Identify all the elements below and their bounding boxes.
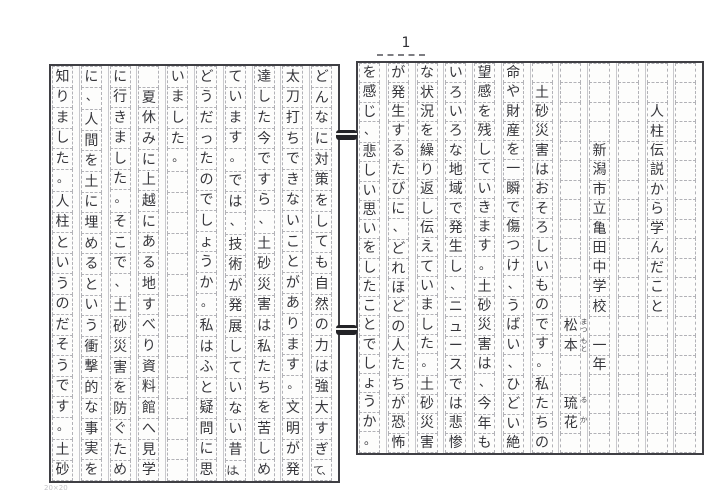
char-cell (167, 356, 188, 378)
char-cell (675, 238, 696, 258)
handwritten-char: 。 (536, 356, 548, 368)
char-cell: ょ (359, 373, 380, 393)
char-cell: 打 (282, 107, 303, 129)
char-cell: 技 (225, 234, 246, 256)
handwritten-char: す (257, 173, 271, 187)
cell-stack: いろいろな地域で発生し、ニュースでは悲惨 (445, 63, 466, 453)
handwritten-char: 。 (421, 356, 433, 368)
handwritten-char: 上 (142, 173, 156, 187)
handwritten-char: 思 (363, 203, 377, 217)
handwritten-char: 一 (506, 162, 520, 176)
char-cell: 惨 (445, 433, 466, 453)
handwritten-char: 傷 (506, 220, 520, 234)
handwritten-char: が (286, 276, 300, 290)
handwritten-char: た (420, 337, 434, 351)
char-cell: 命 (503, 63, 524, 83)
char-cell: を (254, 398, 275, 420)
char-cell: す (282, 354, 303, 376)
char-cell: て (474, 159, 495, 179)
char-cell: び (388, 179, 409, 199)
char-cell: に (110, 66, 131, 88)
char-cell: し (359, 354, 380, 374)
body-column-6: が発生するたびに、どれほどの人たちが恐怖 (386, 63, 415, 453)
char-cell: ま (110, 128, 131, 150)
char-cell: や (503, 82, 524, 102)
char-cell (618, 102, 639, 122)
handwritten-char: し (363, 357, 377, 371)
char-cell: き (282, 169, 303, 191)
handwritten-char: 人 (650, 105, 664, 119)
char-cell: も (532, 276, 553, 296)
char-cell: ど (388, 297, 409, 317)
handwritten-char: ま (171, 90, 185, 104)
handwritten-char: を (478, 105, 492, 119)
char-cell: に (81, 66, 102, 88)
char-cell: ち (388, 375, 409, 395)
handwritten-char: ば (506, 318, 520, 332)
char-cell: に (138, 149, 159, 171)
char-cell: ま (225, 107, 246, 129)
manuscript-scan: 1 人柱伝説から学んだこと新潟市立亀田中学校一年松本琉花まつもとるか土砂災害はお… (0, 0, 712, 504)
cell-stack: 命や財産を一瞬で傷つけ、うばい、ひどい絶 (503, 63, 524, 453)
char-cell: っ (196, 128, 217, 150)
body-column-5: な状況を繰り返し伝えていました。土砂災害 (415, 63, 444, 453)
handwritten-char: 強 (315, 380, 329, 394)
char-cell (647, 316, 668, 336)
char-cell: ど (196, 66, 217, 88)
char-cell (675, 433, 696, 453)
handwritten-char: し (449, 260, 463, 274)
handwritten-char: う (56, 277, 70, 291)
char-cell: た (417, 334, 438, 354)
handwritten-char: が (286, 442, 300, 456)
char-cell (647, 413, 668, 433)
char-cell: す (138, 294, 159, 316)
char-cell (560, 219, 581, 239)
char-cell: 害 (417, 433, 438, 453)
char-cell: 衝 (81, 336, 102, 358)
char-cell: を (417, 121, 438, 141)
char-cell (618, 413, 639, 433)
handwritten-char: 土 (113, 299, 127, 313)
char-cell (618, 180, 639, 200)
handwritten-char: 資 (142, 360, 156, 374)
char-cell: ど (388, 239, 409, 259)
char-cell: 人 (81, 109, 102, 131)
handwritten-char: 惨 (449, 436, 463, 450)
handwritten-char: 展 (228, 320, 242, 334)
handwritten-char: つ (506, 239, 520, 253)
handwritten-char: た (113, 172, 127, 186)
handwritten-char: 間 (84, 134, 98, 148)
char-cell: だ (52, 314, 73, 336)
char-cell: 、 (445, 276, 466, 298)
handwritten-char: 衝 (84, 340, 98, 354)
handwritten-char: を (363, 66, 377, 80)
char-cell (647, 335, 668, 355)
char-cell: な (417, 63, 438, 83)
body-column-7: を感じ、悲しい思いをしたことでしょうか。 (358, 63, 386, 453)
char-cell: は (532, 160, 553, 180)
char-cell: で (225, 171, 246, 193)
char-cell: ち (254, 377, 275, 399)
char-cell: 災 (417, 413, 438, 433)
char-cell (618, 296, 639, 316)
char-cell: 害 (474, 335, 495, 355)
char-cell: 繰 (417, 140, 438, 160)
char-cell: だ (647, 258, 668, 278)
handwritten-char: 的 (84, 381, 98, 395)
handwritten-char: も (315, 256, 329, 270)
handwritten-char: で (449, 378, 463, 392)
char-cell: は (196, 336, 217, 358)
body-column-13: いました。 (165, 66, 194, 481)
handwritten-char: 埋 (84, 216, 98, 230)
handwritten-char: う (84, 319, 98, 333)
char-cell: ま (52, 107, 73, 129)
char-cell (560, 277, 581, 297)
char-cell: て (417, 256, 438, 276)
furigana-label: る (580, 396, 587, 404)
char-cell: 砂 (417, 394, 438, 414)
char-cell: で (503, 198, 524, 218)
handwritten-char: 災 (535, 124, 549, 138)
char-cell: も (311, 252, 332, 274)
char-cell (647, 355, 668, 375)
char-cell: が (225, 275, 246, 297)
handwritten-char: ろ (535, 221, 549, 235)
char-cell (618, 219, 639, 239)
char-cell: ど (311, 66, 332, 88)
handwritten-char: い (420, 279, 434, 293)
handwritten-char: う (506, 299, 520, 313)
char-cell: 見 (138, 439, 159, 461)
handwritten-char: ま (478, 220, 492, 234)
handwritten-char: は (449, 397, 463, 411)
handwritten-char: 、 (508, 357, 520, 369)
handwritten-char: 害 (420, 436, 434, 450)
char-cell: 砂 (52, 460, 73, 482)
handwritten-char: の (535, 298, 549, 312)
char-cell: ほ (388, 278, 409, 298)
char-cell (618, 121, 639, 141)
char-cell: は (445, 394, 466, 414)
char-cell (560, 296, 581, 316)
char-cell: に (81, 192, 102, 214)
char-cell: の (388, 316, 409, 336)
handwritten-char: い (363, 184, 377, 198)
char-cell: た (388, 355, 409, 375)
body-column-16: に、人間を土に埋めるという衝撃的な事実を (79, 66, 108, 481)
char-cell: 私 (532, 375, 553, 395)
char-cell: る (138, 252, 159, 274)
handwritten-char: 生 (391, 105, 405, 119)
handwritten-char: 柱 (56, 215, 70, 229)
char-cell: 域 (445, 179, 466, 199)
handwritten-char: た (363, 280, 377, 294)
char-cell: 昔 (225, 439, 246, 461)
handwritten-char: ー (449, 339, 463, 353)
handwritten-char: と (286, 255, 300, 269)
handwritten-char: 大 (315, 401, 329, 415)
handwritten-char: す (286, 358, 300, 372)
handwritten-char: す (142, 298, 156, 312)
char-cell: な (282, 190, 303, 212)
body-column-1: 土砂災害はおそろしいものです。私たちの (530, 63, 559, 453)
char-cell (618, 374, 639, 394)
char-cell: そ (532, 198, 553, 218)
char-cell: 年 (589, 355, 610, 375)
char-cell: の (532, 433, 553, 453)
handwritten-char: こ (113, 236, 127, 250)
char-cell: か (359, 412, 380, 432)
handwritten-char: し (363, 164, 377, 178)
char-cell: 恐 (388, 413, 409, 433)
char-cell: 的 (81, 377, 102, 399)
char-cell: し (110, 148, 131, 170)
binding-mark-bottom (336, 325, 357, 335)
char-cell (675, 102, 696, 122)
char-cell: 土 (81, 171, 102, 193)
handwritten-char: 明 (286, 422, 300, 436)
handwritten-char: ろ (449, 86, 463, 100)
char-cell (560, 180, 581, 200)
handwritten-char: め (113, 463, 127, 477)
char-cell: 私 (196, 315, 217, 337)
handwritten-char: う (200, 90, 214, 104)
handwritten-char: 新 (593, 144, 607, 158)
char-cell: 。 (282, 375, 303, 399)
handwritten-char: あ (286, 296, 300, 310)
char-cell: 柱 (52, 212, 73, 234)
char-cell: を (110, 378, 131, 400)
char-cell: 災 (532, 121, 553, 141)
char-cell: め (81, 233, 102, 255)
handwritten-char: の (535, 436, 549, 450)
handwritten-char: は (315, 360, 329, 374)
furigana-label: まつ (580, 318, 587, 334)
char-cell: を (474, 102, 495, 122)
char-cell: 地 (445, 160, 466, 180)
char-cell: が (388, 394, 409, 414)
handwritten-char: 料 (142, 380, 156, 394)
char-cell: き (110, 107, 131, 129)
char-cell: 発 (445, 218, 466, 238)
handwritten-char: 砂 (257, 257, 271, 271)
handwritten-char: た (200, 152, 214, 166)
cell-stack: 人柱伝説から学んだこと (647, 63, 668, 453)
handwritten-char: が (228, 279, 242, 293)
handwritten-char: な (449, 144, 463, 158)
cell-stack (618, 63, 639, 453)
char-cell: い (167, 66, 188, 88)
char-cell: 苦 (254, 418, 275, 440)
handwritten-char: 私 (257, 340, 271, 354)
char-cell (675, 121, 696, 141)
char-cell: 学 (138, 459, 159, 481)
char-cell: 潟 (589, 160, 610, 180)
handwritten-char: か (650, 183, 664, 197)
handwritten-char: 、 (479, 376, 491, 388)
handwritten-char: と (56, 236, 70, 250)
char-cell: 館 (138, 397, 159, 419)
body-column-9: 太刀打ちできないことがあります。文明が発 (280, 66, 309, 481)
char-cell (589, 394, 610, 414)
handwritten-char: で (228, 174, 242, 188)
char-cell: い (445, 102, 466, 122)
char-cell: て (225, 66, 246, 88)
char-cell: 学 (589, 277, 610, 297)
char-cell (618, 433, 639, 453)
char-cell: 、 (81, 87, 102, 111)
char-cell: も (474, 433, 495, 453)
handwritten-char: 土 (535, 86, 549, 100)
handwritten-char: い (449, 105, 463, 119)
handwritten-char: の (391, 320, 405, 334)
handwritten-char: 刀 (286, 90, 300, 104)
char-cell: は (474, 354, 495, 374)
handwritten-char: ど (200, 70, 214, 84)
handwritten-char: し (420, 318, 434, 332)
body-column-10: 達した今ですら、土砂災害は私たちを苦しめ (252, 66, 281, 481)
char-cell (618, 258, 639, 278)
char-cell: 上 (138, 170, 159, 192)
body-column-2: 命や財産を一瞬で傷つけ、うばい、ひどい絶 (501, 63, 530, 453)
char-cell: 土 (254, 233, 275, 255)
char-cell: 埋 (81, 212, 102, 234)
char-cell: 。 (532, 353, 553, 375)
char-cell: 災 (474, 315, 495, 335)
handwritten-char: 柱 (650, 125, 664, 139)
cell-stack: を感じ、悲しい思いをしたことでしょうか。 (359, 63, 380, 453)
handwritten-char: い (84, 298, 98, 312)
char-cell: れ (388, 258, 409, 278)
handwritten-char: う (200, 255, 214, 269)
handwritten-char: あ (142, 235, 156, 249)
char-cell: 知 (52, 66, 73, 88)
handwritten-char: 砂 (535, 105, 549, 119)
char-cell (589, 316, 610, 336)
char-cell: す (388, 121, 409, 141)
char-cell: 達 (254, 66, 275, 88)
char-cell: て (225, 357, 246, 379)
char-cell: 学 (647, 219, 668, 239)
char-cell (675, 219, 696, 239)
cell-stack: に、人間を土に埋めるという衝撃的な事実を (81, 66, 102, 481)
char-cell: し (532, 237, 553, 257)
char-cell: た (52, 148, 73, 170)
handwritten-char: 術 (228, 258, 242, 272)
handwritten-char: 。 (201, 296, 213, 308)
char-cell: か (647, 180, 668, 200)
handwritten-char: た (257, 360, 271, 374)
char-cell: そ (110, 212, 131, 234)
handwritten-char: は (257, 319, 271, 333)
handwritten-char: は (478, 357, 492, 371)
handwritten-char: 発 (391, 86, 405, 100)
handwritten-char: も (535, 279, 549, 293)
handwritten-char: な (84, 401, 98, 415)
char-cell: 砂 (254, 253, 275, 275)
handwritten-char: 絶 (506, 436, 520, 450)
furigana-label: か (580, 416, 587, 424)
char-cell: し (359, 258, 380, 278)
handwritten-char: は (228, 195, 242, 209)
char-cell: に (196, 439, 217, 461)
handwritten-char: た (56, 152, 70, 166)
cell-stack: いました。 (167, 66, 188, 481)
handwritten-char: 命 (506, 66, 520, 80)
body-column-3: 望感を残していきます。土砂災害は、今年も (472, 63, 501, 453)
char-cell (167, 336, 188, 358)
handwritten-char: 夏 (142, 91, 156, 105)
char-cell: す (474, 236, 495, 256)
handwritten-char: 達 (257, 70, 271, 84)
body-column-12: どうだったのでしょうか。私はふと疑問に思 (194, 66, 223, 481)
char-cell (167, 274, 188, 296)
handwritten-char: 本 (564, 339, 578, 353)
cell-stack: 達した今ですら、土砂災害は私たちを苦しめ (254, 66, 275, 481)
char-cell: 今 (254, 128, 275, 150)
handwritten-char: 生 (449, 240, 463, 254)
handwritten-char: ま (420, 298, 434, 312)
char-cell (675, 296, 696, 316)
handwritten-char: ま (286, 338, 300, 352)
char-cell (589, 413, 610, 433)
char-cell (167, 253, 188, 275)
handwritten-char: び (391, 182, 405, 196)
char-cell (675, 316, 696, 336)
char-cell: 年 (474, 414, 495, 434)
handwritten-char: 思 (200, 463, 214, 477)
char-cell: は (311, 356, 332, 378)
handwritten-char: み (142, 132, 156, 146)
handwritten-char: 砂 (56, 463, 70, 477)
handwritten-char: 技 (228, 238, 242, 252)
char-cell: 人 (647, 102, 668, 122)
handwritten-char: だ (650, 261, 664, 275)
char-cell: た (254, 356, 275, 378)
handwritten-char: 学 (593, 280, 607, 294)
char-cell: 説 (647, 160, 668, 180)
char-cell: だ (196, 107, 217, 129)
handwritten-char: で (506, 201, 520, 215)
char-cell: べ (138, 314, 159, 336)
char-cell (675, 394, 696, 414)
handwritten-char: き (113, 111, 127, 125)
char-cell: ひ (503, 375, 524, 395)
char-cell: め (254, 459, 275, 481)
handwritten-char: 事 (84, 422, 98, 436)
char-cell: 然 (311, 294, 332, 316)
handwritten-char: 害 (113, 361, 127, 375)
handwritten-char: し (257, 442, 271, 456)
char-cell: 。 (110, 189, 131, 213)
handwritten-char: め (257, 463, 271, 477)
handwritten-char: 感 (363, 85, 377, 99)
char-cell: し (311, 211, 332, 233)
handwritten-char: こ (650, 280, 664, 294)
char-cell: 対 (311, 149, 332, 171)
char-cell (618, 238, 639, 258)
handwritten-char: 、 (450, 279, 462, 291)
title-column: 人柱伝説から学んだこと (645, 63, 674, 453)
handwritten-char: 財 (506, 105, 520, 119)
char-cell: が (282, 272, 303, 294)
body-column-4: いろいろな地域で発生し、ニュースでは悲惨 (443, 63, 472, 453)
handwritten-char: で (257, 152, 271, 166)
cell-stack (675, 63, 696, 453)
